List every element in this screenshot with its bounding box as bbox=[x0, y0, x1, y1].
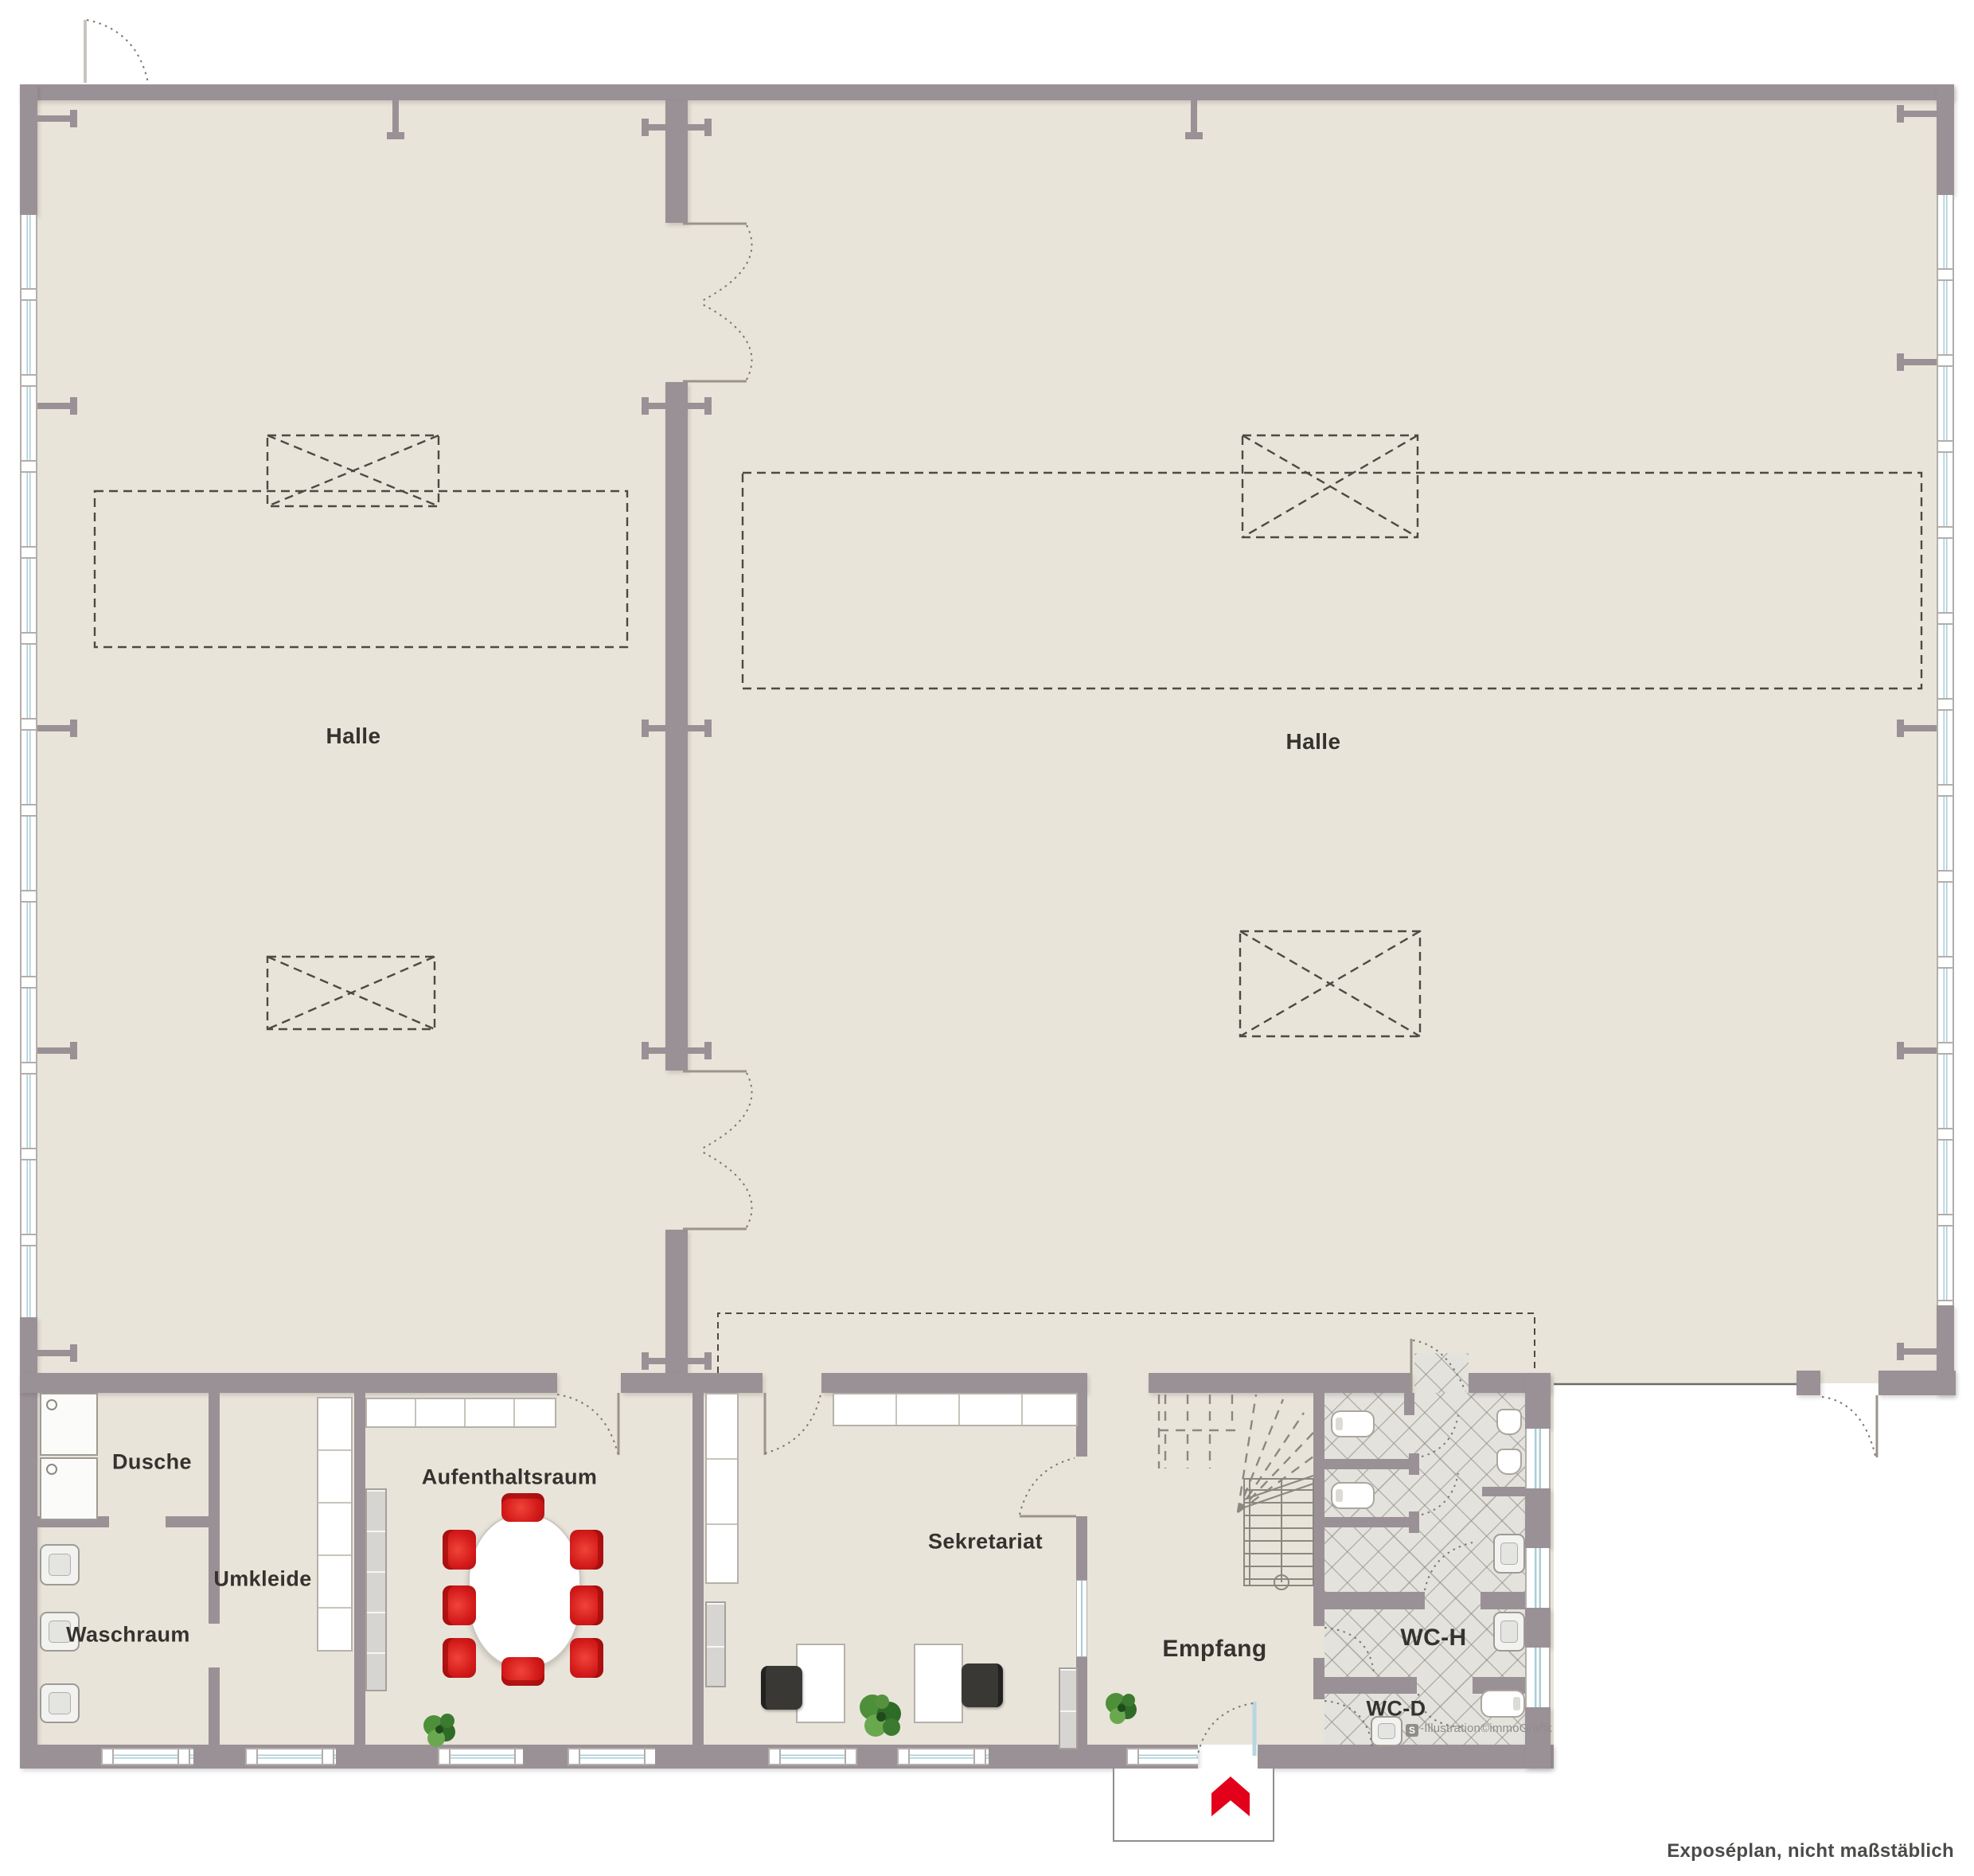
window-right-wall bbox=[1937, 195, 1954, 1305]
wc-d-toilet bbox=[1480, 1690, 1525, 1718]
chair bbox=[570, 1530, 603, 1570]
floorplan: Halle Halle Dusche Umkleide Waschraum Au… bbox=[0, 0, 1974, 1876]
wall-sekretariat-empfang-a bbox=[1076, 1393, 1087, 1457]
wall-bottom-east bbox=[1258, 1745, 1554, 1769]
window-wc-1 bbox=[1525, 1429, 1551, 1488]
urinal-2 bbox=[1496, 1449, 1522, 1475]
aufenthalt-counter bbox=[365, 1398, 556, 1428]
wc-stall-wall-1 bbox=[1324, 1459, 1417, 1469]
wc-urinal-stub bbox=[1482, 1487, 1525, 1496]
watermark: S-Illustration©immoGrafik bbox=[1305, 1722, 1552, 1737]
band-wall-1 bbox=[20, 1373, 557, 1393]
chair bbox=[501, 1657, 544, 1686]
wc-right-wall-2 bbox=[1525, 1488, 1551, 1548]
wall-bottomright bbox=[1878, 1371, 1956, 1395]
chair bbox=[443, 1585, 476, 1625]
sekretariat-cabinet-low-left bbox=[705, 1601, 726, 1687]
wc-stall-wall-2 bbox=[1324, 1517, 1417, 1527]
wc-toilet-stall-2 bbox=[1331, 1482, 1375, 1509]
label-waschraum: Waschraum bbox=[66, 1623, 190, 1648]
window-bottom-1 bbox=[101, 1748, 193, 1765]
chair bbox=[570, 1638, 603, 1678]
window-bottom-7 bbox=[1126, 1748, 1198, 1765]
wc-stall-cap-2 bbox=[1409, 1511, 1419, 1533]
label-empfang: Empfang bbox=[1162, 1636, 1266, 1663]
wall-empfang-wc-a bbox=[1313, 1393, 1324, 1626]
chair bbox=[570, 1585, 603, 1625]
wc-corridor-tiles bbox=[1414, 1353, 1469, 1393]
urinal-1 bbox=[1496, 1409, 1522, 1435]
chair bbox=[443, 1530, 476, 1570]
band-wall-4 bbox=[1149, 1373, 1411, 1393]
wall-bottomright-pillar bbox=[1796, 1371, 1820, 1395]
sekretariat-cabinet-tall bbox=[705, 1393, 739, 1584]
wc-right-wall-4 bbox=[1525, 1707, 1551, 1769]
wc-h-inner-wall-b bbox=[1480, 1592, 1525, 1609]
entrance-porch bbox=[1113, 1769, 1274, 1842]
wc-right-wall-1 bbox=[1525, 1373, 1551, 1429]
wall-top bbox=[20, 84, 1954, 100]
window-wc-3 bbox=[1525, 1648, 1551, 1707]
aufenthalt-cabinet bbox=[365, 1488, 387, 1691]
label-wc-d: WC-D bbox=[1366, 1697, 1426, 1722]
washroom-sink-1 bbox=[40, 1544, 80, 1585]
window-bottom-2 bbox=[245, 1748, 336, 1765]
hall-divider-mid bbox=[665, 382, 688, 1071]
wc-stall-cap-1 bbox=[1409, 1453, 1419, 1475]
wc-right-wall-3 bbox=[1525, 1608, 1551, 1648]
window-wc-2 bbox=[1525, 1548, 1551, 1608]
wall-sekretariat-empfang-c bbox=[1076, 1657, 1087, 1745]
immografik-logo-icon: S bbox=[1406, 1724, 1418, 1737]
desk-1 bbox=[796, 1644, 845, 1723]
watermark-text: -Illustration©immoGrafik bbox=[1420, 1722, 1552, 1735]
window-sekretariat-empfang bbox=[1076, 1580, 1087, 1657]
wc-h-d-wall-a bbox=[1324, 1677, 1417, 1694]
window-bottom-6 bbox=[897, 1748, 989, 1765]
window-bottom-5 bbox=[768, 1748, 857, 1765]
wall-right-upper bbox=[1937, 84, 1954, 195]
wall-umkleide-aufenthalt bbox=[354, 1393, 365, 1745]
umkleide-lockers bbox=[317, 1397, 353, 1652]
sekretariat-counter bbox=[833, 1393, 1078, 1426]
wall-waschraum-umkleide-b bbox=[209, 1667, 220, 1745]
office-chair-2 bbox=[962, 1663, 1003, 1707]
wall-dusche-b bbox=[166, 1516, 220, 1527]
shower-stall-2 bbox=[40, 1457, 98, 1520]
label-dusche: Dusche bbox=[112, 1450, 192, 1475]
label-aufenthaltsraum: Aufenthaltsraum bbox=[422, 1465, 598, 1490]
wc-corridor-stub bbox=[1404, 1393, 1414, 1415]
wall-empfang-wc-b bbox=[1313, 1658, 1324, 1699]
wall-aufenthalt-sekretariat bbox=[692, 1393, 704, 1745]
wc-sink-2 bbox=[1493, 1612, 1525, 1652]
label-wc-h: WC-H bbox=[1400, 1624, 1466, 1652]
hall-floor bbox=[37, 100, 1937, 1383]
label-hall-right: Halle bbox=[1286, 729, 1341, 755]
shower-stall-1 bbox=[40, 1393, 98, 1456]
label-sekretariat: Sekretariat bbox=[928, 1530, 1043, 1554]
chair bbox=[501, 1493, 544, 1522]
sekretariat-cabinet-low-right bbox=[1059, 1667, 1078, 1749]
label-umkleide: Umkleide bbox=[213, 1567, 311, 1592]
window-left-wall bbox=[20, 215, 37, 1317]
hall-divider-bottom bbox=[665, 1230, 688, 1373]
desk-2 bbox=[914, 1644, 963, 1723]
washroom-sink-3 bbox=[40, 1683, 80, 1723]
meeting-table bbox=[468, 1514, 581, 1668]
band-wall-3 bbox=[821, 1373, 1087, 1393]
wall-sekretariat-empfang-b bbox=[1076, 1516, 1087, 1580]
wc-toilet-stall-1 bbox=[1331, 1410, 1375, 1437]
band-wall-2 bbox=[621, 1373, 763, 1393]
wc-sink-1 bbox=[1493, 1534, 1525, 1574]
wc-h-inner-wall-a bbox=[1324, 1592, 1425, 1609]
label-hall-left: Halle bbox=[326, 723, 381, 749]
window-bottom-3 bbox=[438, 1748, 523, 1765]
window-bottom-4 bbox=[568, 1748, 655, 1765]
scale-note: Exposéplan, nicht maßstäblich bbox=[1592, 1840, 1954, 1862]
wall-left-upper bbox=[20, 84, 37, 215]
chair bbox=[443, 1638, 476, 1678]
office-chair-1 bbox=[761, 1666, 802, 1710]
hall-divider-top bbox=[665, 100, 688, 223]
